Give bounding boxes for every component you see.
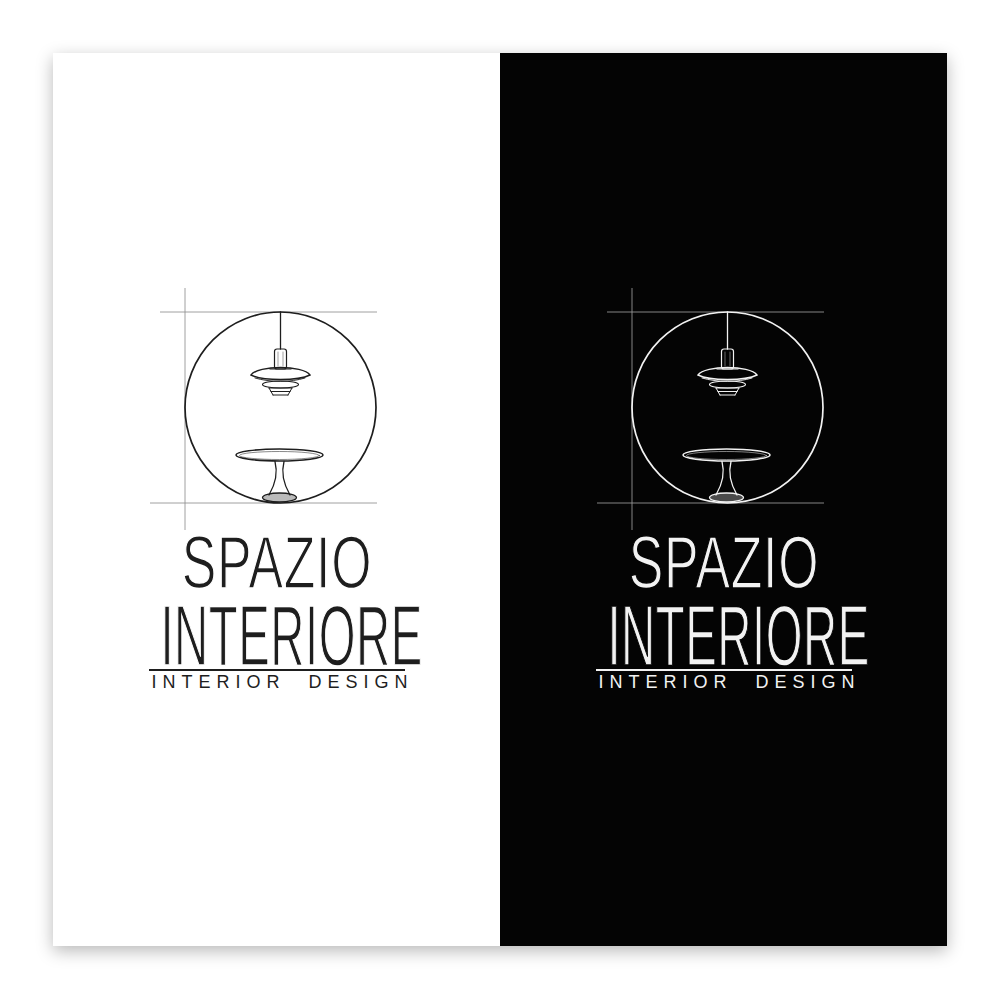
brand-name-line2: INTERIORE — [53, 592, 500, 678]
brand-name-line2: INTERIORE — [500, 592, 947, 678]
logo-presentation: SPAZIO INTERIORE INTERIOR DESIGN SPAZIO … — [53, 53, 947, 946]
brand-tagline: INTERIOR DESIGN — [500, 673, 947, 691]
panel-dark: SPAZIO INTERIORE INTERIOR DESIGN — [500, 53, 947, 946]
divider-rule — [596, 669, 852, 671]
divider-rule — [149, 669, 405, 671]
pendant-lamp-table-sketch-icon — [595, 285, 835, 535]
panel-light: SPAZIO INTERIORE INTERIOR DESIGN — [53, 53, 500, 946]
brand-tagline: INTERIOR DESIGN — [53, 673, 500, 691]
brand-name-line2-text: INTERIORE — [607, 592, 869, 678]
brand-name-line2-text: INTERIORE — [160, 592, 422, 678]
pendant-lamp-table-sketch-icon — [148, 285, 388, 535]
